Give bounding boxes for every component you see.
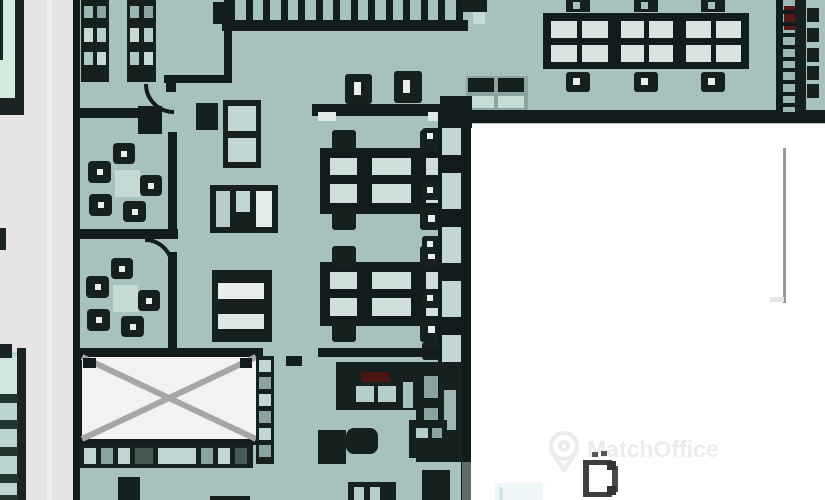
svg-text:MatchOffice: MatchOffice <box>587 436 719 462</box>
